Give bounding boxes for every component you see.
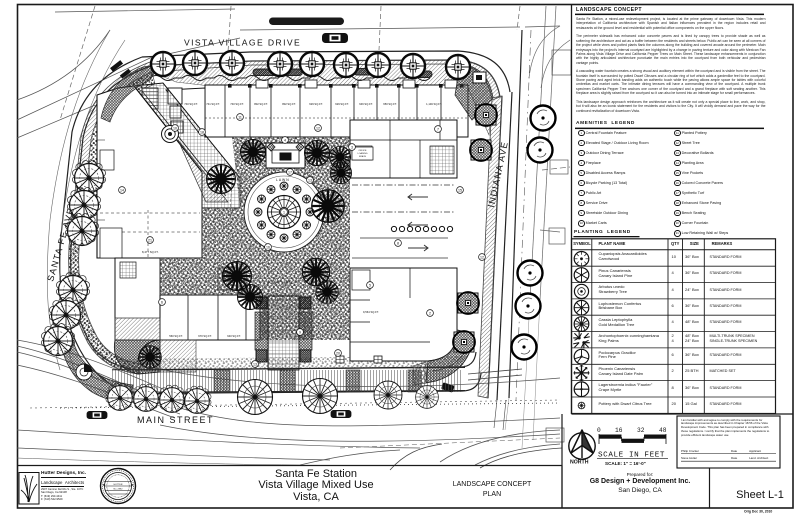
svg-text:629 SQ.FT.: 629 SQ.FT.	[309, 102, 323, 106]
svg-text:13: 13	[253, 362, 257, 366]
svg-text:8: 8	[397, 241, 399, 245]
svg-text:COURTYARD: COURTYARD	[263, 281, 294, 285]
svg-text:48: 48	[659, 427, 667, 434]
svg-text:18: 18	[200, 130, 204, 134]
svg-text:640 SQ.FT.: 640 SQ.FT.	[227, 334, 241, 338]
svg-text:12: 12	[316, 126, 320, 130]
svg-text:670 SQ.FT.: 670 SQ.FT.	[198, 334, 212, 338]
svg-text:629 SQ.FT.: 629 SQ.FT.	[335, 102, 349, 106]
svg-text:802 SQ.FT.: 802 SQ.FT.	[282, 102, 296, 106]
svg-text:16: 16	[266, 245, 270, 249]
svg-text:3: 3	[351, 145, 353, 149]
svg-text:646 SQ.FT.: 646 SQ.FT.	[359, 102, 373, 106]
svg-text:560 SQ.FT.: 560 SQ.FT.	[169, 334, 183, 338]
svg-text:10: 10	[173, 126, 177, 130]
svg-text:12: 12	[480, 255, 484, 259]
svg-text:6: 6	[161, 300, 163, 304]
svg-text:14: 14	[120, 188, 124, 192]
svg-text:13: 13	[308, 178, 312, 182]
svg-text:20: 20	[336, 351, 340, 355]
svg-text:SPACE: SPACE	[359, 155, 367, 158]
svg-text:NORTH: NORTH	[570, 460, 589, 466]
svg-text:740 SQ.FT.: 740 SQ.FT.	[230, 102, 244, 106]
svg-text:MAIN STREET: MAIN STREET	[137, 415, 214, 425]
svg-text:17: 17	[288, 170, 292, 174]
svg-text:OFFICE: OFFICE	[358, 150, 367, 152]
svg-text:5: 5	[369, 283, 371, 287]
svg-text:1,149 SQ.FT.: 1,149 SQ.FT.	[426, 102, 442, 106]
svg-text:0: 0	[597, 427, 601, 434]
svg-text:741 SQ.FT.: 741 SQ.FT.	[206, 102, 220, 106]
svg-text:SCALE: 1" = 16'-0": SCALE: 1" = 16'-0"	[605, 461, 646, 466]
svg-text:4: 4	[284, 138, 286, 142]
svg-text:LOADING: LOADING	[358, 152, 368, 155]
svg-text:802 SQ.FT.: 802 SQ.FT.	[254, 102, 268, 106]
svg-text:7: 7	[437, 127, 439, 131]
svg-text:32: 32	[637, 427, 645, 434]
svg-text:740 SQ.FT.: 740 SQ.FT.	[184, 102, 198, 106]
svg-text:No. 2882: No. 2882	[114, 489, 124, 491]
svg-text:2: 2	[429, 311, 431, 315]
svg-text:Orig Dec 30, 2010: Orig Dec 30, 2010	[744, 510, 772, 514]
svg-text:8,477 SQ.FT.: 8,477 SQ.FT.	[142, 250, 159, 254]
svg-text:HUTTER: HUTTER	[114, 484, 123, 486]
svg-text:21: 21	[148, 238, 152, 242]
svg-text:9,564 SQ.FT.: 9,564 SQ.FT.	[363, 310, 379, 314]
svg-text:1: 1	[283, 210, 285, 214]
svg-text:9: 9	[299, 330, 301, 334]
svg-text:11: 11	[238, 115, 242, 119]
svg-text:15: 15	[458, 188, 462, 192]
svg-text:VISTA VILLAGE DRIVE: VISTA VILLAGE DRIVE	[184, 38, 301, 48]
svg-text:650 SQ.FT.: 650 SQ.FT.	[383, 102, 397, 106]
svg-text:16: 16	[615, 427, 623, 434]
svg-text:LAWN: LAWN	[276, 178, 290, 182]
